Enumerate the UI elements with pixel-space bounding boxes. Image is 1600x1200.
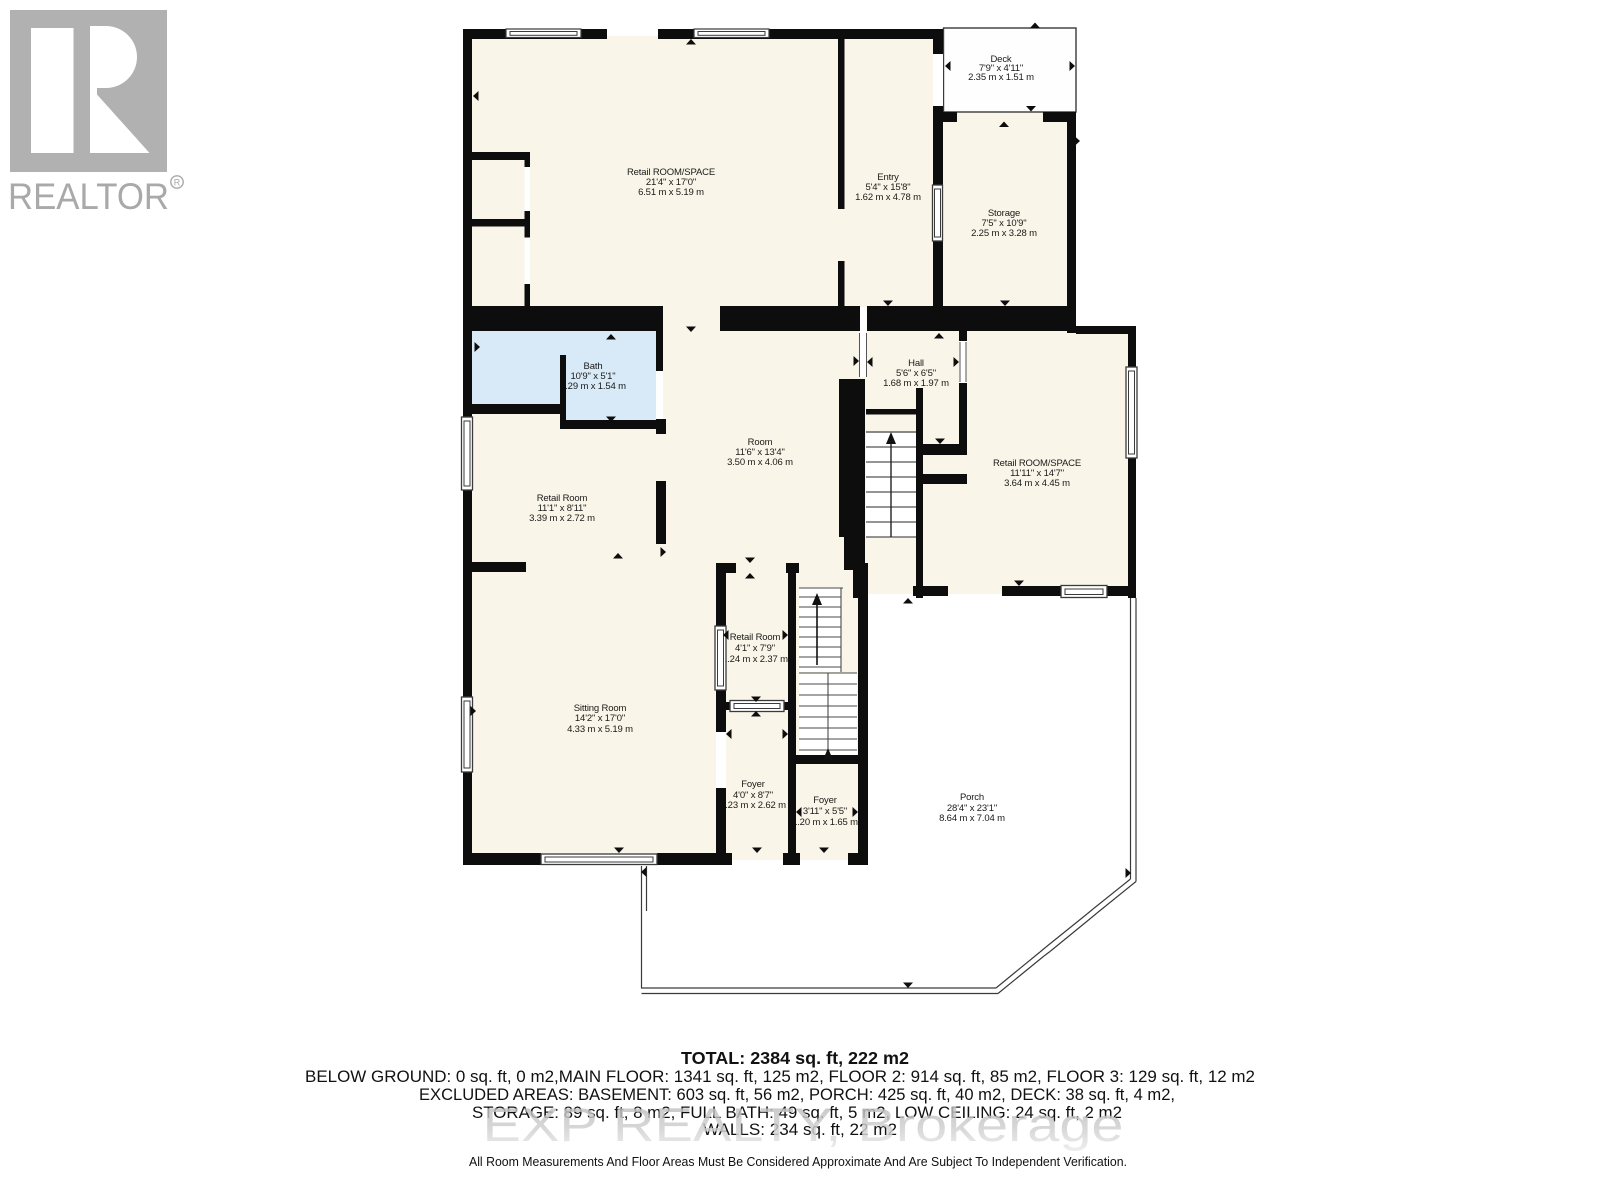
svg-text:REALTOR: REALTOR — [8, 176, 169, 217]
svg-text:R: R — [174, 178, 181, 188]
svg-text:1.23 m x 2.62 m: 1.23 m x 2.62 m — [720, 800, 786, 811]
svg-text:2.25 m x 3.28 m: 2.25 m x 3.28 m — [971, 228, 1037, 239]
svg-text:6.51 m x 5.19 m: 6.51 m x 5.19 m — [638, 187, 704, 198]
svg-text:1.68 m x 1.97 m: 1.68 m x 1.97 m — [883, 378, 949, 389]
svg-text:BELOW GROUND: 0 sq. ft, 0 m2,M: BELOW GROUND: 0 sq. ft, 0 m2,MAIN FLOOR:… — [305, 1067, 1255, 1086]
svg-text:4'1" x 7'9": 4'1" x 7'9" — [735, 643, 775, 654]
svg-text:1.20 m x 1.65 m: 1.20 m x 1.65 m — [792, 817, 858, 828]
svg-text:3.64 m x 4.45 m: 3.64 m x 4.45 m — [1004, 478, 1070, 489]
svg-text:2.35 m x 1.51 m: 2.35 m x 1.51 m — [968, 72, 1034, 83]
svg-text:3.29 m x 1.54 m: 3.29 m x 1.54 m — [560, 381, 626, 392]
svg-text:1.24 m x 2.37 m: 1.24 m x 2.37 m — [722, 654, 788, 665]
svg-text:All Room Measurements And Floo: All Room Measurements And Floor Areas Mu… — [469, 1155, 1127, 1169]
svg-text:8.64 m x 7.04 m: 8.64 m x 7.04 m — [939, 813, 1005, 824]
svg-text:1.62 m x 4.78 m: 1.62 m x 4.78 m — [855, 192, 921, 203]
svg-text:14'2" x 17'0": 14'2" x 17'0" — [575, 713, 625, 724]
svg-text:Porch: Porch — [960, 792, 984, 803]
svg-text:3'11" x 5'5": 3'11" x 5'5" — [803, 806, 847, 817]
svg-text:EXP REALTY, Brokerage: EXP REALTY, Brokerage — [483, 1099, 1124, 1152]
svg-text:TOTAL: 2384 sq. ft, 222 m2: TOTAL: 2384 sq. ft, 222 m2 — [681, 1048, 909, 1068]
svg-text:3.50 m x 4.06 m: 3.50 m x 4.06 m — [727, 457, 793, 468]
svg-text:Foyer: Foyer — [741, 779, 765, 790]
svg-text:Retail Room: Retail Room — [730, 632, 781, 643]
svg-text:Foyer: Foyer — [813, 795, 837, 806]
svg-text:3.39 m x 2.72 m: 3.39 m x 2.72 m — [529, 513, 595, 524]
svg-text:4.33 m x 5.19 m: 4.33 m x 5.19 m — [567, 724, 633, 735]
